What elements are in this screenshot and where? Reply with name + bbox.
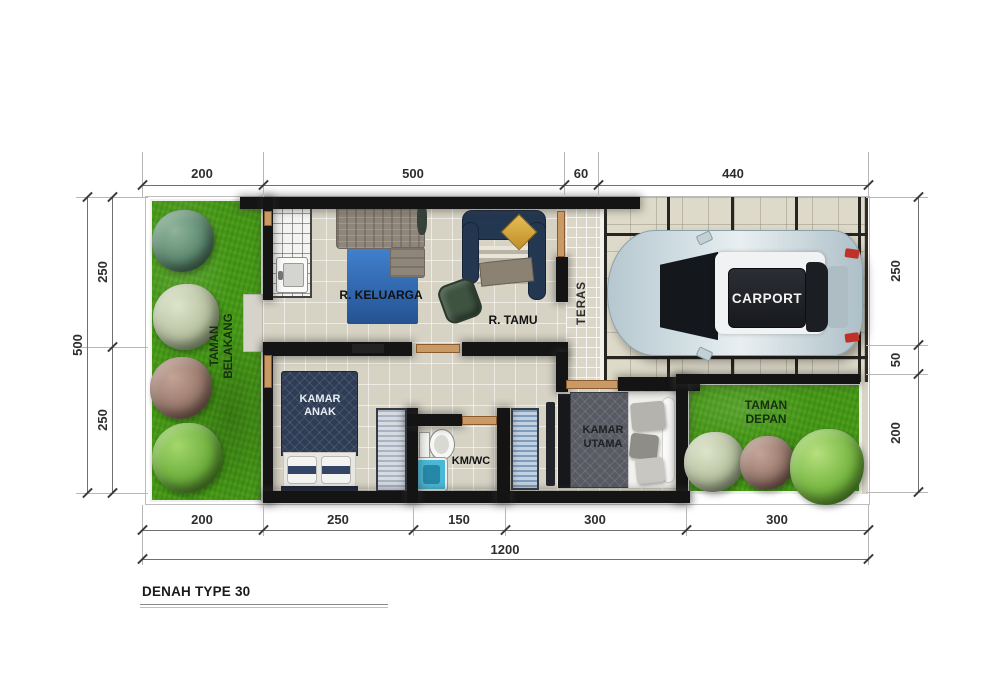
wall-bottom <box>263 491 690 503</box>
master-bedroom-label-line1: KAMAR <box>573 424 633 438</box>
hall-door-frame <box>416 344 460 353</box>
family-room-sofa-chaise <box>390 247 425 278</box>
dim-right-1: 250 <box>889 241 903 301</box>
kitchen-faucet <box>278 271 283 280</box>
kitchen-sink-bowl <box>283 263 304 287</box>
dim-line-left-outer <box>87 197 88 493</box>
kid-bedroom-label: KAMAR ANAK <box>290 393 350 419</box>
living-room-label: R. TAMU <box>468 313 558 327</box>
carport-label: CARPORT <box>732 291 802 306</box>
master-side-table <box>546 402 555 486</box>
tv-console <box>352 344 384 353</box>
car-windshield <box>660 250 718 342</box>
dim-bottom-3: 150 <box>429 513 489 527</box>
front-door-frame <box>566 380 618 389</box>
dim-left-2: 250 <box>96 390 110 450</box>
wall-bath-top <box>407 414 462 426</box>
dim-bottom-total: 1200 <box>475 543 535 557</box>
back-garden-label-line1: TAMAN <box>209 281 223 411</box>
master-bed-pillow <box>635 457 665 485</box>
dim-bottom-4: 300 <box>565 513 625 527</box>
front-garden-label-line2: DEPAN <box>731 413 801 427</box>
master-bedroom-label-line2: UTAMA <box>573 438 633 452</box>
kid-bedroom-label-line2: ANAK <box>290 406 350 419</box>
wall-mid-right <box>462 342 568 356</box>
dim-left-total: 500 <box>71 315 85 375</box>
master-bed-pillow <box>629 433 659 461</box>
dim-right-2: 50 <box>889 330 903 390</box>
living-terrace-window-frame <box>557 211 565 257</box>
kid-bed-pillow <box>321 456 351 484</box>
title-underline <box>140 607 388 608</box>
dim-bottom-1: 200 <box>172 513 232 527</box>
title-underline <box>140 604 388 605</box>
wall-front-garden <box>676 374 860 384</box>
dim-top-3: 60 <box>551 167 611 181</box>
shower-drain <box>423 465 440 484</box>
dim-left-1: 250 <box>96 242 110 302</box>
car-sunroof: CARPORT <box>728 268 806 328</box>
dim-top-1: 200 <box>172 167 232 181</box>
carport-grid-line <box>604 356 868 359</box>
back-garden-label: TAMAN BELAKANG <box>209 281 247 411</box>
car-taillight-left <box>844 248 859 259</box>
dim-line-bottom-total <box>142 559 868 560</box>
floor-plan-canvas: CARPORT <box>0 0 991 700</box>
family-room-sofa <box>336 205 425 249</box>
living-room-sofa-left <box>462 222 479 284</box>
wall-mid-left <box>263 342 412 356</box>
kid-bedroom-label-line1: KAMAR <box>290 393 350 406</box>
wardrobe-master <box>511 408 539 490</box>
bathroom-label: KM/WC <box>441 455 501 467</box>
dim-right-3: 200 <box>889 403 903 463</box>
dim-bottom-2: 250 <box>308 513 368 527</box>
dim-line-top <box>142 185 868 186</box>
wall-top <box>240 197 640 209</box>
master-bedroom-label: KAMAR UTAMA <box>573 424 633 452</box>
ext-line <box>868 152 869 197</box>
ext-line <box>263 152 264 197</box>
bedroom1-window-frame <box>264 355 272 388</box>
ext-line <box>142 152 143 197</box>
wardrobe-kid <box>376 408 407 492</box>
page-title: DENAH TYPE 30 <box>142 584 250 599</box>
front-garden-label-line1: TAMAN <box>731 399 801 413</box>
kid-bed-pillow <box>287 456 317 484</box>
terrace-label: TERAS <box>576 263 590 343</box>
wall-master-right <box>676 377 688 503</box>
front-garden-label: TAMAN DEPAN <box>731 399 801 427</box>
dim-top-4: 440 <box>703 167 763 181</box>
dim-bottom-5: 300 <box>747 513 807 527</box>
toilet-bowl-inner <box>434 435 449 454</box>
car-rear-window <box>806 262 828 332</box>
family-room-label: R. KELUARGA <box>331 288 431 302</box>
car-trunk <box>828 266 848 328</box>
kitchen-door-frame <box>264 211 272 226</box>
master-bed-pillow <box>630 401 666 432</box>
bath-door-frame <box>462 416 497 425</box>
back-garden-label-line2: BELAKANG <box>223 281 237 411</box>
dim-top-2: 500 <box>383 167 443 181</box>
wall-terrace-a <box>556 257 568 302</box>
car-taillight-right <box>844 332 859 343</box>
